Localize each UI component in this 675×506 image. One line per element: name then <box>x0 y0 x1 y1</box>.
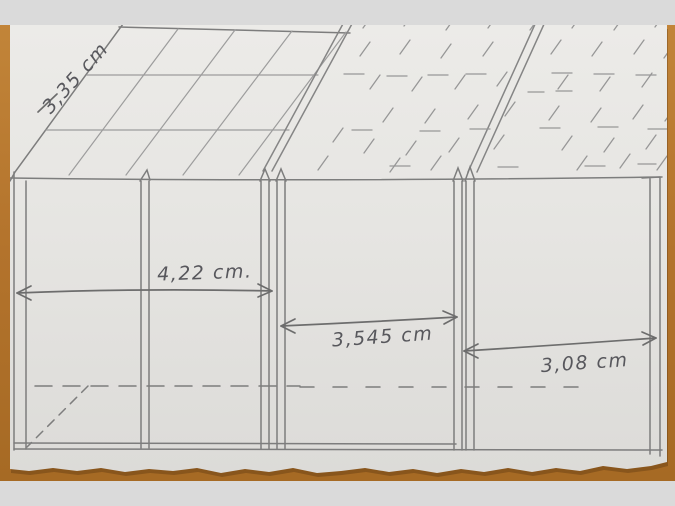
dimension-label-left: 4,22 cm. <box>157 260 253 285</box>
backdrop-top <box>0 0 675 25</box>
paper <box>10 25 667 473</box>
photo-of-sketch: 3,35 cm 4,22 cm. 3,545 cm 3,08 cm <box>0 0 675 506</box>
sketch-photo: 3,35 cm 4,22 cm. 3,545 cm 3,08 cm <box>0 0 675 506</box>
backdrop-bottom <box>0 481 675 506</box>
